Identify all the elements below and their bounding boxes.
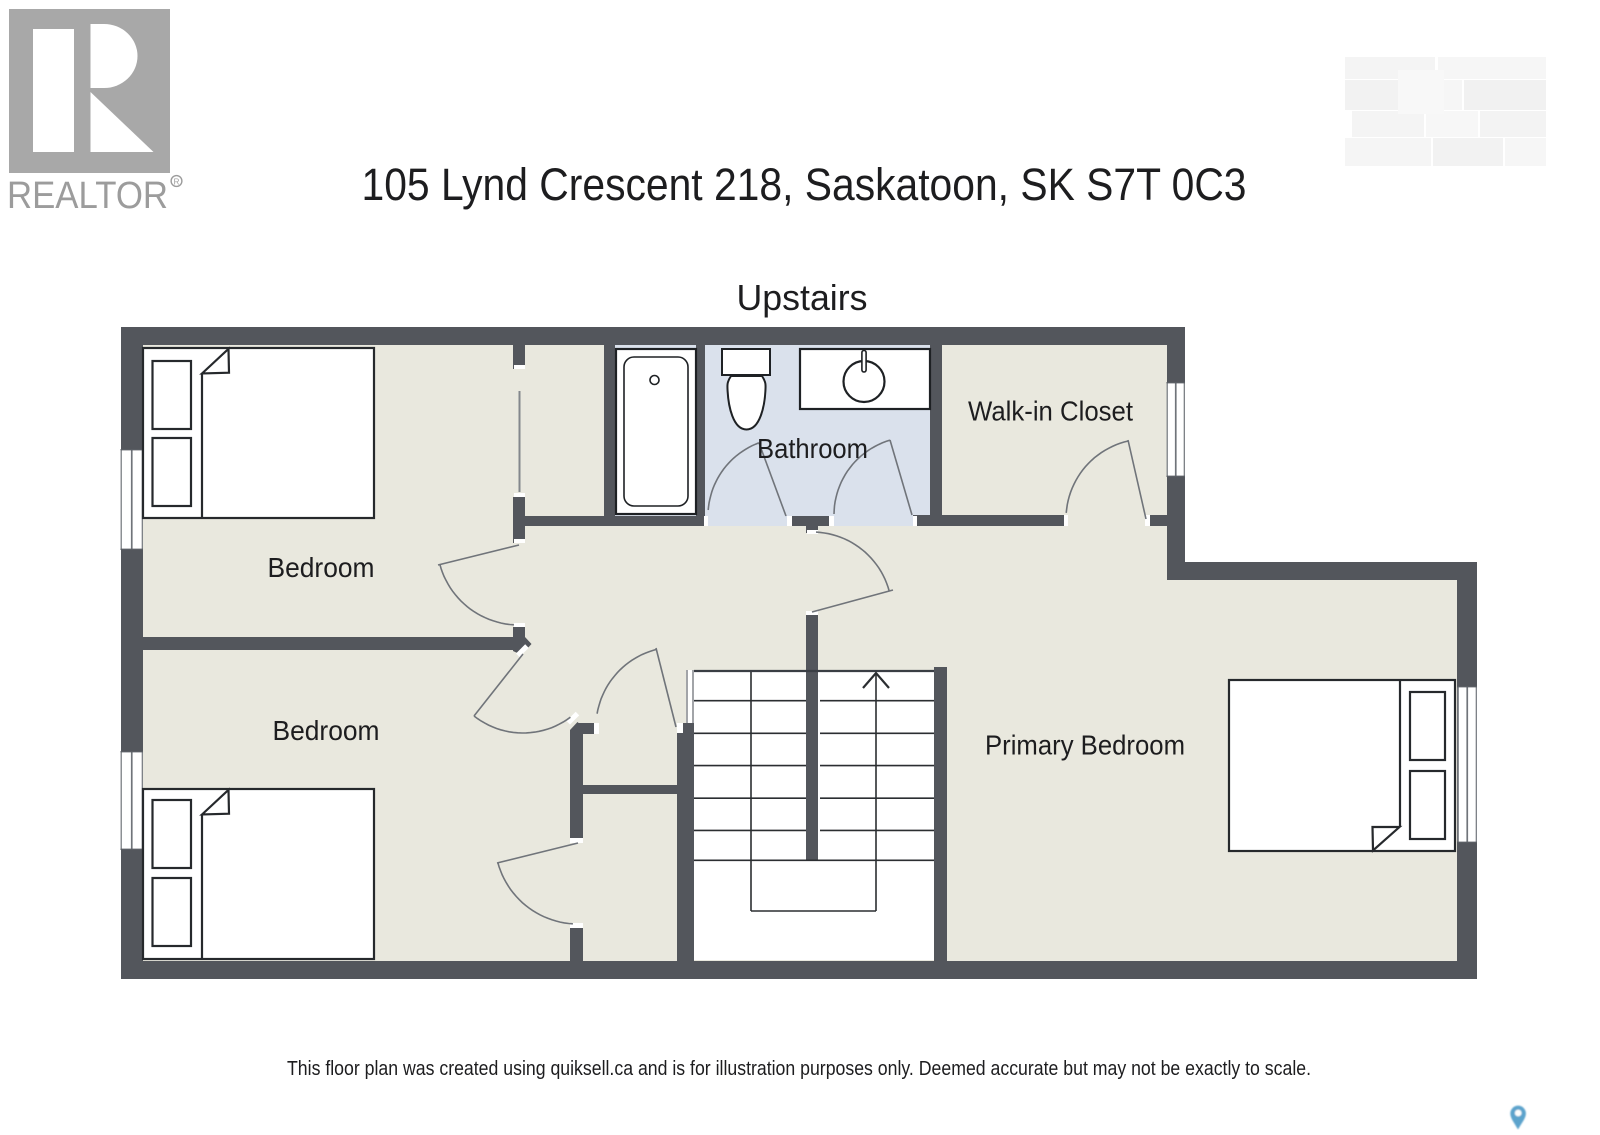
svg-text:Upstairs: Upstairs: [737, 277, 868, 318]
svg-text:105 Lynd Crescent 218, Saskato: 105 Lynd Crescent 218, Saskatoon, SK S7T…: [362, 159, 1247, 210]
svg-text:Bedroom: Bedroom: [273, 715, 380, 746]
svg-text:Bathroom: Bathroom: [757, 433, 868, 464]
svg-text:REALTOR: REALTOR: [7, 175, 168, 217]
svg-text:Primary Bedroom: Primary Bedroom: [985, 730, 1185, 761]
svg-text:Bedroom: Bedroom: [268, 552, 375, 583]
svg-text:R: R: [174, 178, 180, 187]
svg-text:Walk-in Closet: Walk-in Closet: [968, 396, 1133, 427]
svg-text:This floor plan was created us: This floor plan was created using quikse…: [287, 1058, 1311, 1080]
